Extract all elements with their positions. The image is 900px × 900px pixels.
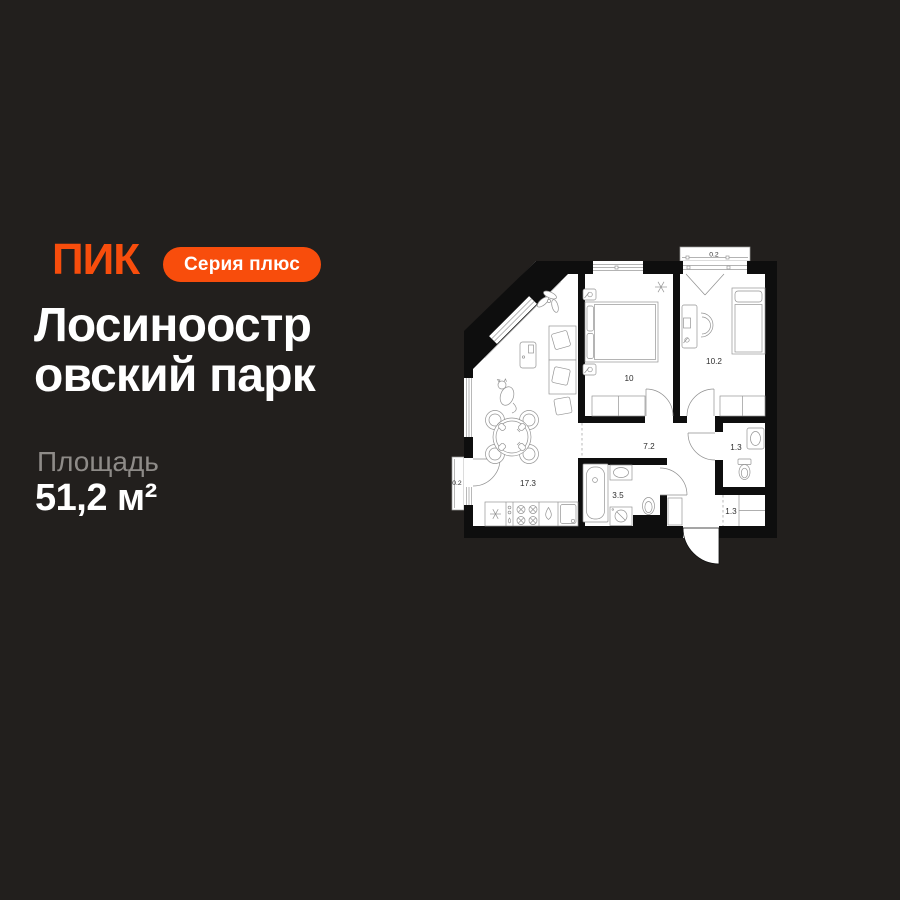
- sconce-icon: [583, 289, 596, 300]
- area-value: 51,2 м²: [35, 477, 157, 520]
- project-title: Лосиноостр овский парк: [34, 301, 315, 401]
- pik-logo: ПИК: [52, 240, 139, 280]
- room-label-hallway: 7.2: [643, 442, 655, 451]
- room-label-balcony-top: 0.2: [709, 252, 719, 259]
- room-label-storage: 1.3: [725, 507, 737, 516]
- entrance-door: [683, 526, 719, 564]
- room-label-bathroom: 3.5: [612, 491, 624, 500]
- sconce-icon: [583, 364, 596, 375]
- series-badge: Серия плюс: [163, 247, 321, 282]
- floorplan-svg: 17.3 10 10.2 7.2 3.5 1.3 1.3 0.2 0.2: [443, 240, 788, 572]
- room-label-wc: 1.3: [730, 443, 742, 452]
- dining-set: [486, 411, 539, 464]
- washing-machine-icon: [610, 507, 632, 526]
- toilet-icon: [738, 459, 751, 480]
- floorplan: 17.3 10 10.2 7.2 3.5 1.3 1.3 0.2 0.2: [443, 240, 788, 572]
- listing-card: ПИК Серия плюс Лосиноостр овский парк Пл…: [0, 0, 900, 900]
- room-label-bedroom-1: 10: [624, 374, 634, 383]
- toilet-icon: [643, 498, 655, 515]
- kitchen-counter: [485, 502, 578, 526]
- project-title-line1: Лосиноостр: [34, 301, 315, 351]
- project-title-line2: овский парк: [34, 351, 315, 401]
- room-label-bedroom-2: 10.2: [706, 357, 722, 366]
- room-label-living: 17.3: [520, 479, 536, 488]
- room-label-balcony-left: 0.2: [452, 480, 462, 487]
- area-label: Площадь: [37, 446, 159, 478]
